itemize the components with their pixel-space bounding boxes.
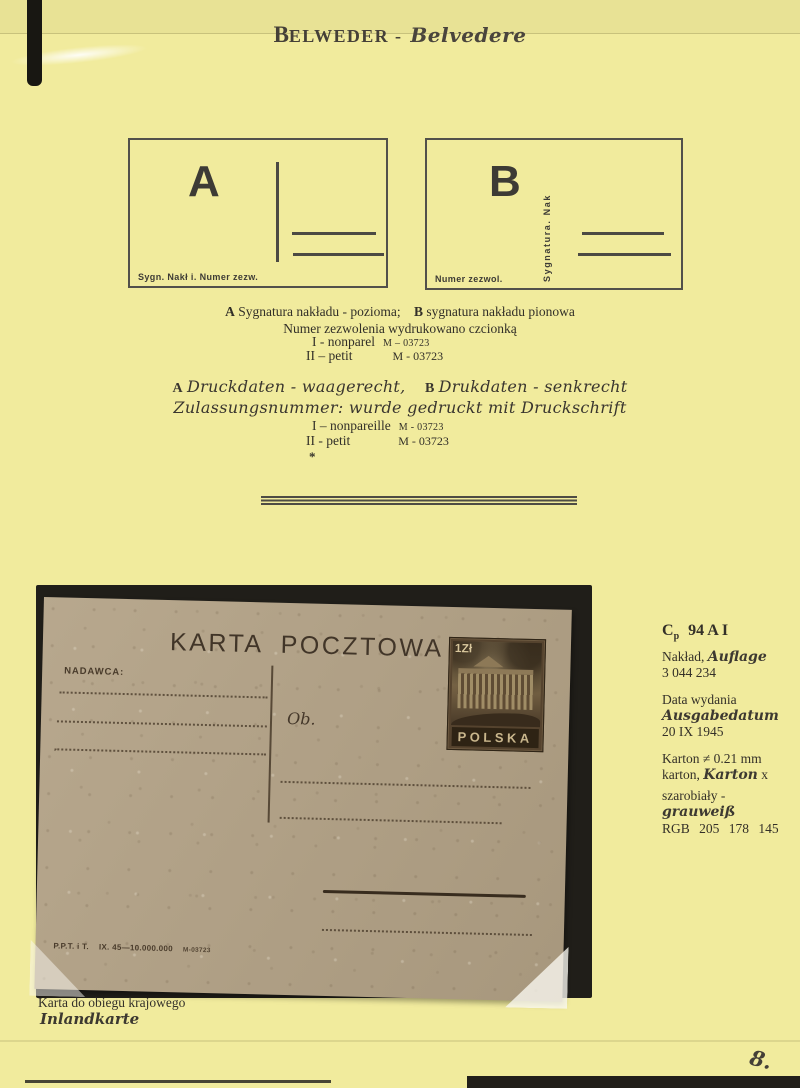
german-note-line1: ADruckdaten - waagerecht, BDrukdaten - s… [0, 377, 800, 397]
german-note-line1-text2: Drukdaten - senkrecht [439, 377, 628, 396]
german-note-line1-text1: Druckdaten - waagerecht, [187, 377, 406, 396]
addressee-label: Ob. [287, 709, 316, 729]
card-stock-labels: karton, Karton x [662, 767, 800, 784]
catalog-number: Cp94 A I [662, 623, 800, 646]
sender-label: NADAWCA: [64, 666, 124, 678]
edition-count: 3 044 234 [662, 665, 800, 682]
stamp-palace-pediment [474, 656, 504, 668]
stamp-country-label: POLSKA [451, 727, 538, 748]
issue-date-label-de: Ausgabedatum [662, 708, 800, 724]
footnote-asterisk: * [309, 449, 316, 465]
catalog-info-block: Cp94 A I Nakład, Auflage 3 044 234 Data … [662, 623, 800, 837]
permit-number: M - 03723 [393, 349, 444, 363]
edition-labels: Nakład, Auflage [662, 649, 800, 666]
paper-crease-line [0, 1040, 800, 1042]
imprint-print-run: IX. 45—10.000.000 [99, 942, 173, 953]
caption-polish: Karta do obiegu krajowego [38, 995, 185, 1011]
polish-note-line1: A Sygnatura nakładu - pozioma; B sygnatu… [0, 304, 800, 320]
card-color-label-pl: szarobiały - [662, 788, 725, 803]
imprint-permit-code: M-03723 [183, 947, 211, 955]
diagram-b-vertical-label: Sygnatura. Nak [542, 182, 552, 282]
address-dotted-line [280, 817, 502, 824]
imprinted-stamp: 1Zł POLSKA [446, 637, 546, 752]
diagram-box-b: B Sygnatura. Nak Numer zezwol. [425, 138, 683, 290]
marker-a: A [225, 304, 235, 319]
diagram-b-address-line [582, 232, 664, 235]
diagram-b-caption: Numer zezwol. [435, 274, 503, 284]
german-note-line4: II - petitM - 03723 [306, 433, 449, 449]
card-stock-x: x [761, 767, 768, 782]
imprint-publisher: P.P.T. i T. [53, 941, 89, 951]
page-title-caps: ELWEDER - [289, 26, 402, 46]
diagram-box-a: A Sygn. Nakł i. Numer zezw. [128, 138, 388, 288]
sender-dotted-line [60, 691, 268, 698]
diagram-a-caption: Sygn. Nakł i. Numer zezw. [138, 272, 258, 282]
permit-number: M - 03723 [398, 434, 449, 448]
card-stock-label-pl: karton, [662, 767, 700, 782]
stamp-denomination: 1Zł [455, 641, 473, 655]
page-title: BELWEDER -Belvedere [0, 22, 800, 48]
address-solid-line [323, 890, 526, 898]
triple-rule-divider [261, 496, 577, 505]
page-title-script: Belvedere [410, 23, 526, 47]
card-stock-label-de: Karton [703, 767, 758, 783]
postcard-scan: KARTA POCZTOWA NADAWCA: Ob. P.P.T. i T.I… [34, 597, 571, 1002]
card-color-labels: szarobiały - grauweiß [662, 788, 800, 821]
spacer [662, 741, 800, 751]
postcard-divider-rule [268, 666, 274, 823]
edition-label-pl: Nakład, [662, 649, 704, 664]
stamp-palace-colonnade [458, 668, 534, 710]
marker-b: B [425, 381, 435, 396]
printer-imprint: P.P.T. i T.IX. 45—10.000.000M-03723 [53, 941, 210, 954]
catalog-number-letter: C [662, 622, 674, 639]
german-note-line3: I – nonpareilleM - 03723 [312, 418, 444, 434]
edition-label-de: Auflage [708, 649, 767, 665]
card-stock-thickness: Karton ≠ 0.21 mm [662, 751, 800, 768]
caption-german: Inlandkarte [40, 1010, 139, 1028]
photo-corner-mount [505, 945, 568, 1008]
sender-dotted-line [54, 748, 266, 755]
polish-note-line1-text2: sygnatura nakładu pionowa [426, 304, 574, 319]
address-dotted-line [322, 929, 532, 936]
marker-b: B [414, 304, 423, 319]
page-number: 8. [747, 1045, 774, 1075]
diagram-b-address-line [578, 253, 671, 256]
diagram-a-vertical-rule [276, 162, 279, 262]
stamp-garden-foreground [451, 712, 540, 728]
marker-a: A [173, 381, 183, 396]
polish-note-line1-text1: Sygnatura nakładu - pozioma; [238, 304, 400, 319]
card-color-label-de: grauweiß [662, 804, 735, 820]
polish-note-line4: II – petitM - 03723 [306, 348, 443, 364]
scan-edge-strip [25, 1080, 331, 1083]
type-ii-label: II - petit [306, 433, 350, 448]
issue-date-label-pl: Data wydania [662, 692, 800, 709]
german-note-line2: Zulassungsnummer: wurde gedruckt mit Dru… [0, 398, 800, 417]
sender-dotted-line [57, 720, 267, 727]
diagram-a-address-line [293, 253, 384, 256]
spacer [662, 682, 800, 692]
type-i-label: I – nonpareille [312, 418, 391, 433]
diagram-a-address-line [292, 232, 376, 235]
album-page: BELWEDER -Belvedere A Sygn. Nakł i. Nume… [0, 0, 800, 1088]
issue-date-value: 20 IX 1945 [662, 724, 800, 741]
address-dotted-line [281, 781, 531, 789]
catalog-number-subscript: p [674, 631, 680, 642]
card-color-rgb: RGB 205 178 145 [662, 821, 800, 838]
diagram-a-letter: A [188, 160, 220, 204]
type-i-label: I - nonparel [312, 334, 375, 349]
diagram-b-letter: B [489, 160, 521, 204]
page-title-initial: B [274, 22, 289, 47]
permit-number: M - 03723 [399, 422, 444, 433]
catalog-number-rest: 94 A I [688, 622, 728, 639]
type-ii-label: II – petit [306, 348, 353, 363]
scan-edge-strip [467, 1076, 800, 1088]
